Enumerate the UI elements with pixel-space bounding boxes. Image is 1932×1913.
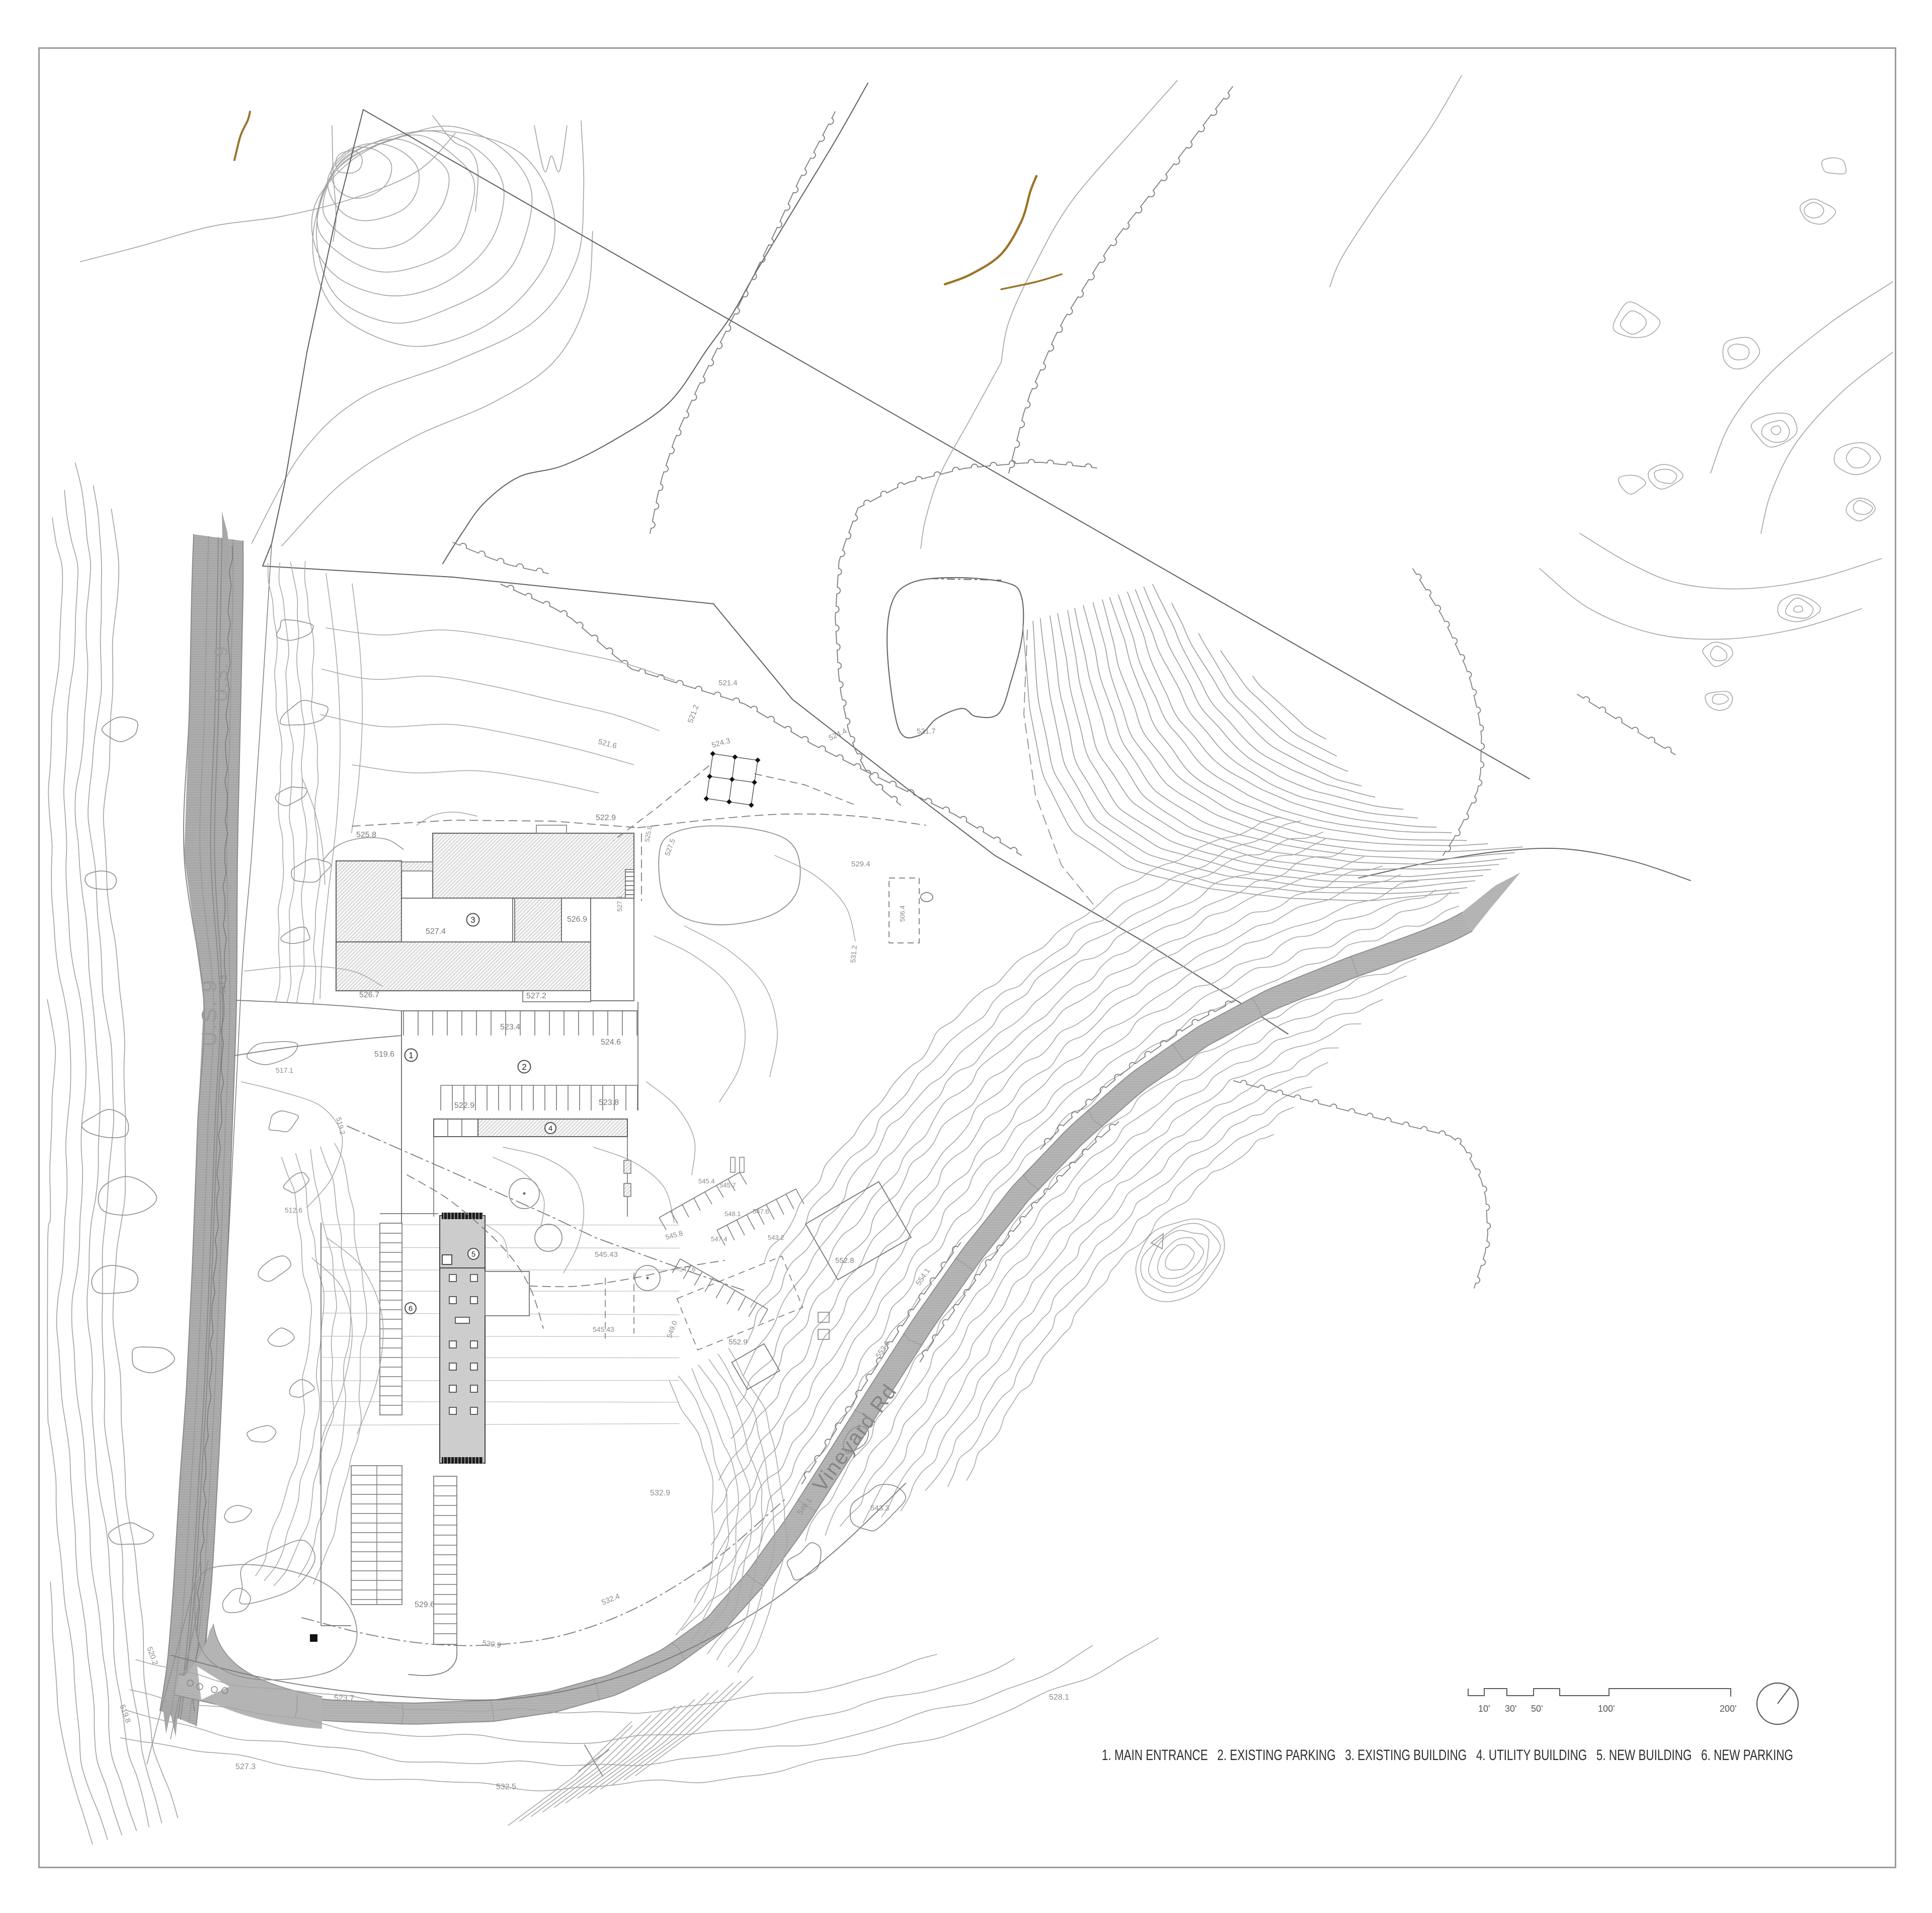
svg-text:527.2: 527.2 [526,992,546,1000]
svg-text:200': 200' [1720,1704,1736,1714]
svg-text:527.3: 527.3 [235,1763,256,1771]
svg-text:531.2: 531.2 [849,945,858,964]
svg-text:522.9: 522.9 [596,814,616,822]
svg-text:512.6: 512.6 [285,1206,302,1214]
svg-text:1. MAIN ENTRANCE 2. EXISTING: 1. MAIN ENTRANCE 2. EXISTING PARKING 3. … [1102,1747,1793,1764]
svg-text:548.1: 548.1 [725,1210,741,1218]
svg-text:2: 2 [522,1062,526,1072]
svg-text:517.5: 517.5 [219,975,227,994]
svg-text:523.4: 523.4 [500,1023,520,1031]
svg-text:10': 10' [1478,1704,1490,1714]
svg-text:545.7: 545.7 [719,1181,736,1189]
svg-text:526.9: 526.9 [567,915,587,924]
svg-text:517.1: 517.1 [276,1066,293,1074]
svg-text:545.43: 545.43 [595,1250,618,1259]
svg-text:529.6: 529.6 [415,1601,435,1609]
svg-text:U.S. 9: U.S. 9 [197,979,221,1047]
svg-text:545.43: 545.43 [593,1325,614,1333]
svg-text:30': 30' [1505,1704,1516,1714]
svg-text:532.9: 532.9 [650,1489,670,1497]
svg-text:526.7: 526.7 [359,991,379,999]
svg-text:524.6: 524.6 [601,1038,621,1047]
svg-text:U.S. 9: U.S. 9 [211,646,231,702]
svg-text:6: 6 [409,1304,413,1313]
svg-text:532.5: 532.5 [496,1783,516,1791]
svg-text:522.9: 522.9 [454,1101,474,1110]
svg-text:552.8: 552.8 [835,1256,854,1265]
svg-text:528.1: 528.1 [1049,1693,1069,1702]
svg-text:545.4: 545.4 [698,1177,715,1185]
svg-text:527.4: 527.4 [426,927,446,936]
svg-text:523.8: 523.8 [599,1098,619,1107]
svg-text:519.6: 519.6 [374,1050,394,1059]
svg-text:100': 100' [1598,1704,1615,1714]
svg-text:543.2: 543.2 [768,1234,784,1241]
svg-text:521.7: 521.7 [917,727,936,736]
svg-text:50': 50' [1531,1704,1543,1714]
svg-text:506.4: 506.4 [899,905,906,922]
svg-text:547.6: 547.6 [753,1208,769,1215]
svg-text:547.4: 547.4 [711,1235,728,1243]
svg-text:527.1: 527.1 [616,895,623,912]
svg-text:3: 3 [470,915,475,925]
svg-text:547.6: 547.6 [679,1265,696,1273]
svg-text:4: 4 [548,1124,552,1133]
svg-text:552.9: 552.9 [729,1338,748,1346]
svg-text:1: 1 [409,1051,413,1060]
svg-text:529.4: 529.4 [851,860,870,868]
svg-text:521.4: 521.4 [718,679,738,687]
svg-text:5: 5 [471,1250,475,1258]
